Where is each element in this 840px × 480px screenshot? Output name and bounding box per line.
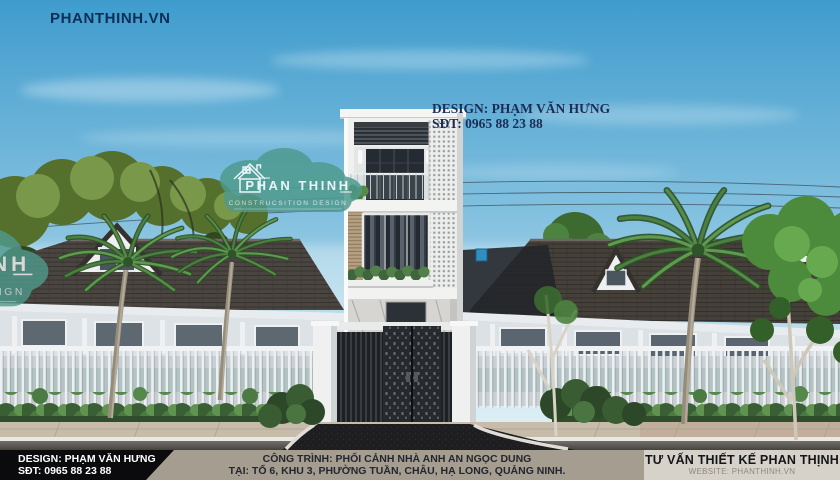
company-website: WEBSITE: PHANTHINH.VN xyxy=(644,467,840,477)
gate-doors xyxy=(383,326,441,428)
main-house xyxy=(340,109,466,348)
architectural-render: PHAN THINH CONSTRUCSITION DESIGN xyxy=(0,0,840,450)
wall-sconce xyxy=(358,150,363,164)
project-address: TẠI: TỔ 6, KHU 3, PHƯỜNG TUẦN, CHÂU, HẠ … xyxy=(150,465,644,478)
slat-screen xyxy=(354,127,429,146)
render-canvas: PHAN THINH CONSTRUCSITION DESIGN xyxy=(0,0,840,480)
gate xyxy=(311,321,478,433)
project-name: CÔNG TRÌNH: PHỐI CẢNH NHÀ ANH AN NGỌC DU… xyxy=(150,453,644,466)
info-bar-designer: DESIGN: PHẠM VĂN HƯNG SĐT: 0965 88 23 88 xyxy=(0,450,176,480)
company-name: TƯ VẤN THIẾT KẾ PHAN THỊNH xyxy=(644,453,840,467)
roof-sign xyxy=(476,249,487,261)
design-credit: DESIGN: PHẠM VĂN HƯNG SĐT: 0965 88 23 88 xyxy=(432,101,610,131)
website-watermark: PHANTHINH.VN xyxy=(50,10,171,27)
info-bar-project: CÔNG TRÌNH: PHỐI CẢNH NHÀ ANH AN NGỌC DU… xyxy=(150,450,644,480)
design-credit-line1: DESIGN: PHẠM VĂN HƯNG xyxy=(432,101,610,116)
planter-hedge xyxy=(345,266,433,289)
bay-window xyxy=(363,214,429,271)
designer-name: DESIGN: PHẠM VĂN HƯNG xyxy=(18,453,176,466)
info-bar: CÔNG TRÌNH: PHỐI CẢNH NHÀ ANH AN NGỌC DU… xyxy=(0,450,840,480)
design-credit-line2: SĐT: 0965 88 23 88 xyxy=(432,116,610,131)
info-bar-company: TƯ VẤN THIẾT KẾ PHAN THỊNH WEBSITE: PHAN… xyxy=(644,450,840,480)
